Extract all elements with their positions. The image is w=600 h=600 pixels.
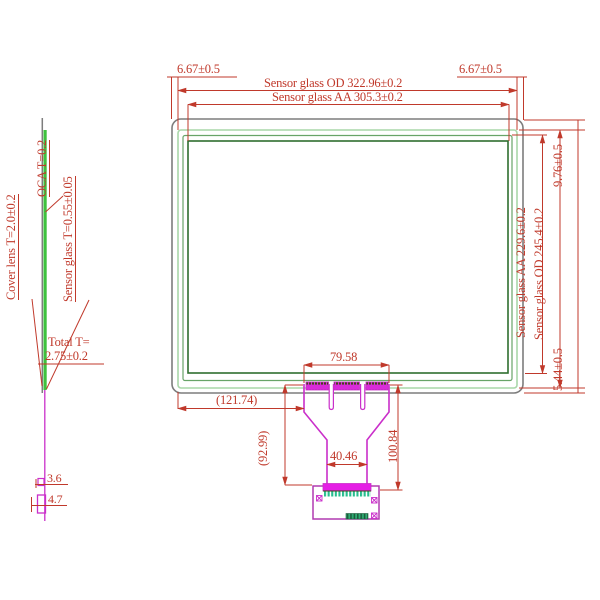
dim-offset-top-edge: 9.76±0.5 [552, 144, 565, 187]
label-total-1: Total T= [48, 336, 90, 349]
dim-offset-top-left: 6.67±0.5 [177, 63, 220, 76]
label-sensor-glass: Sensor glass T=0.55±0.05 [62, 176, 76, 302]
dim-aa-height: Sensor glass AA 229.6±0.2 [515, 207, 528, 338]
connector-ground-pad [346, 514, 368, 520]
label-oca: OCA T=0.2 [36, 140, 50, 197]
active-area-outline [188, 141, 508, 373]
dim-tail-length: (92.99) [257, 431, 270, 466]
dim-neck-width: 40.46 [330, 450, 357, 463]
label-total-2: 2.75±0.2 [45, 350, 88, 363]
leader-cover-lens [32, 299, 42, 386]
dim-total-length: 100.84 [387, 430, 400, 463]
bond-pad-left [306, 382, 329, 390]
dim-bond-width: 79.58 [330, 351, 357, 364]
dim-od-height: Sensor glass OD 245.4±0.2 [533, 208, 546, 340]
bond-pad-middle [334, 382, 360, 390]
dim-offset-bottom-edge: 5.44±0.5 [552, 348, 565, 391]
bond-pad-right [366, 382, 388, 390]
dim-od-width: Sensor glass OD 322.96±0.2 [264, 77, 402, 90]
dim-4-7: 4.7 [48, 493, 62, 506]
fpc-slot-left [329, 384, 333, 410]
dim-3-6: 3.6 [47, 472, 61, 485]
engineering-drawing: Cover lens T=2.0±0.2 OCA T=0.2 Sensor gl… [0, 0, 600, 600]
dim-offset-x: (121.74) [216, 394, 257, 407]
fpc-outline-left [304, 384, 327, 484]
mid-green-outline [183, 136, 512, 381]
connector-contacts [323, 491, 371, 497]
label-cover-lens: Cover lens T=2.0±0.2 [5, 194, 19, 300]
dim-aa-width: Sensor glass AA 305.3±0.2 [272, 91, 403, 104]
dim-offset-top-right: 6.67±0.5 [459, 63, 502, 76]
fpc-slot-right [361, 384, 365, 410]
connector-stiffener [323, 484, 371, 492]
